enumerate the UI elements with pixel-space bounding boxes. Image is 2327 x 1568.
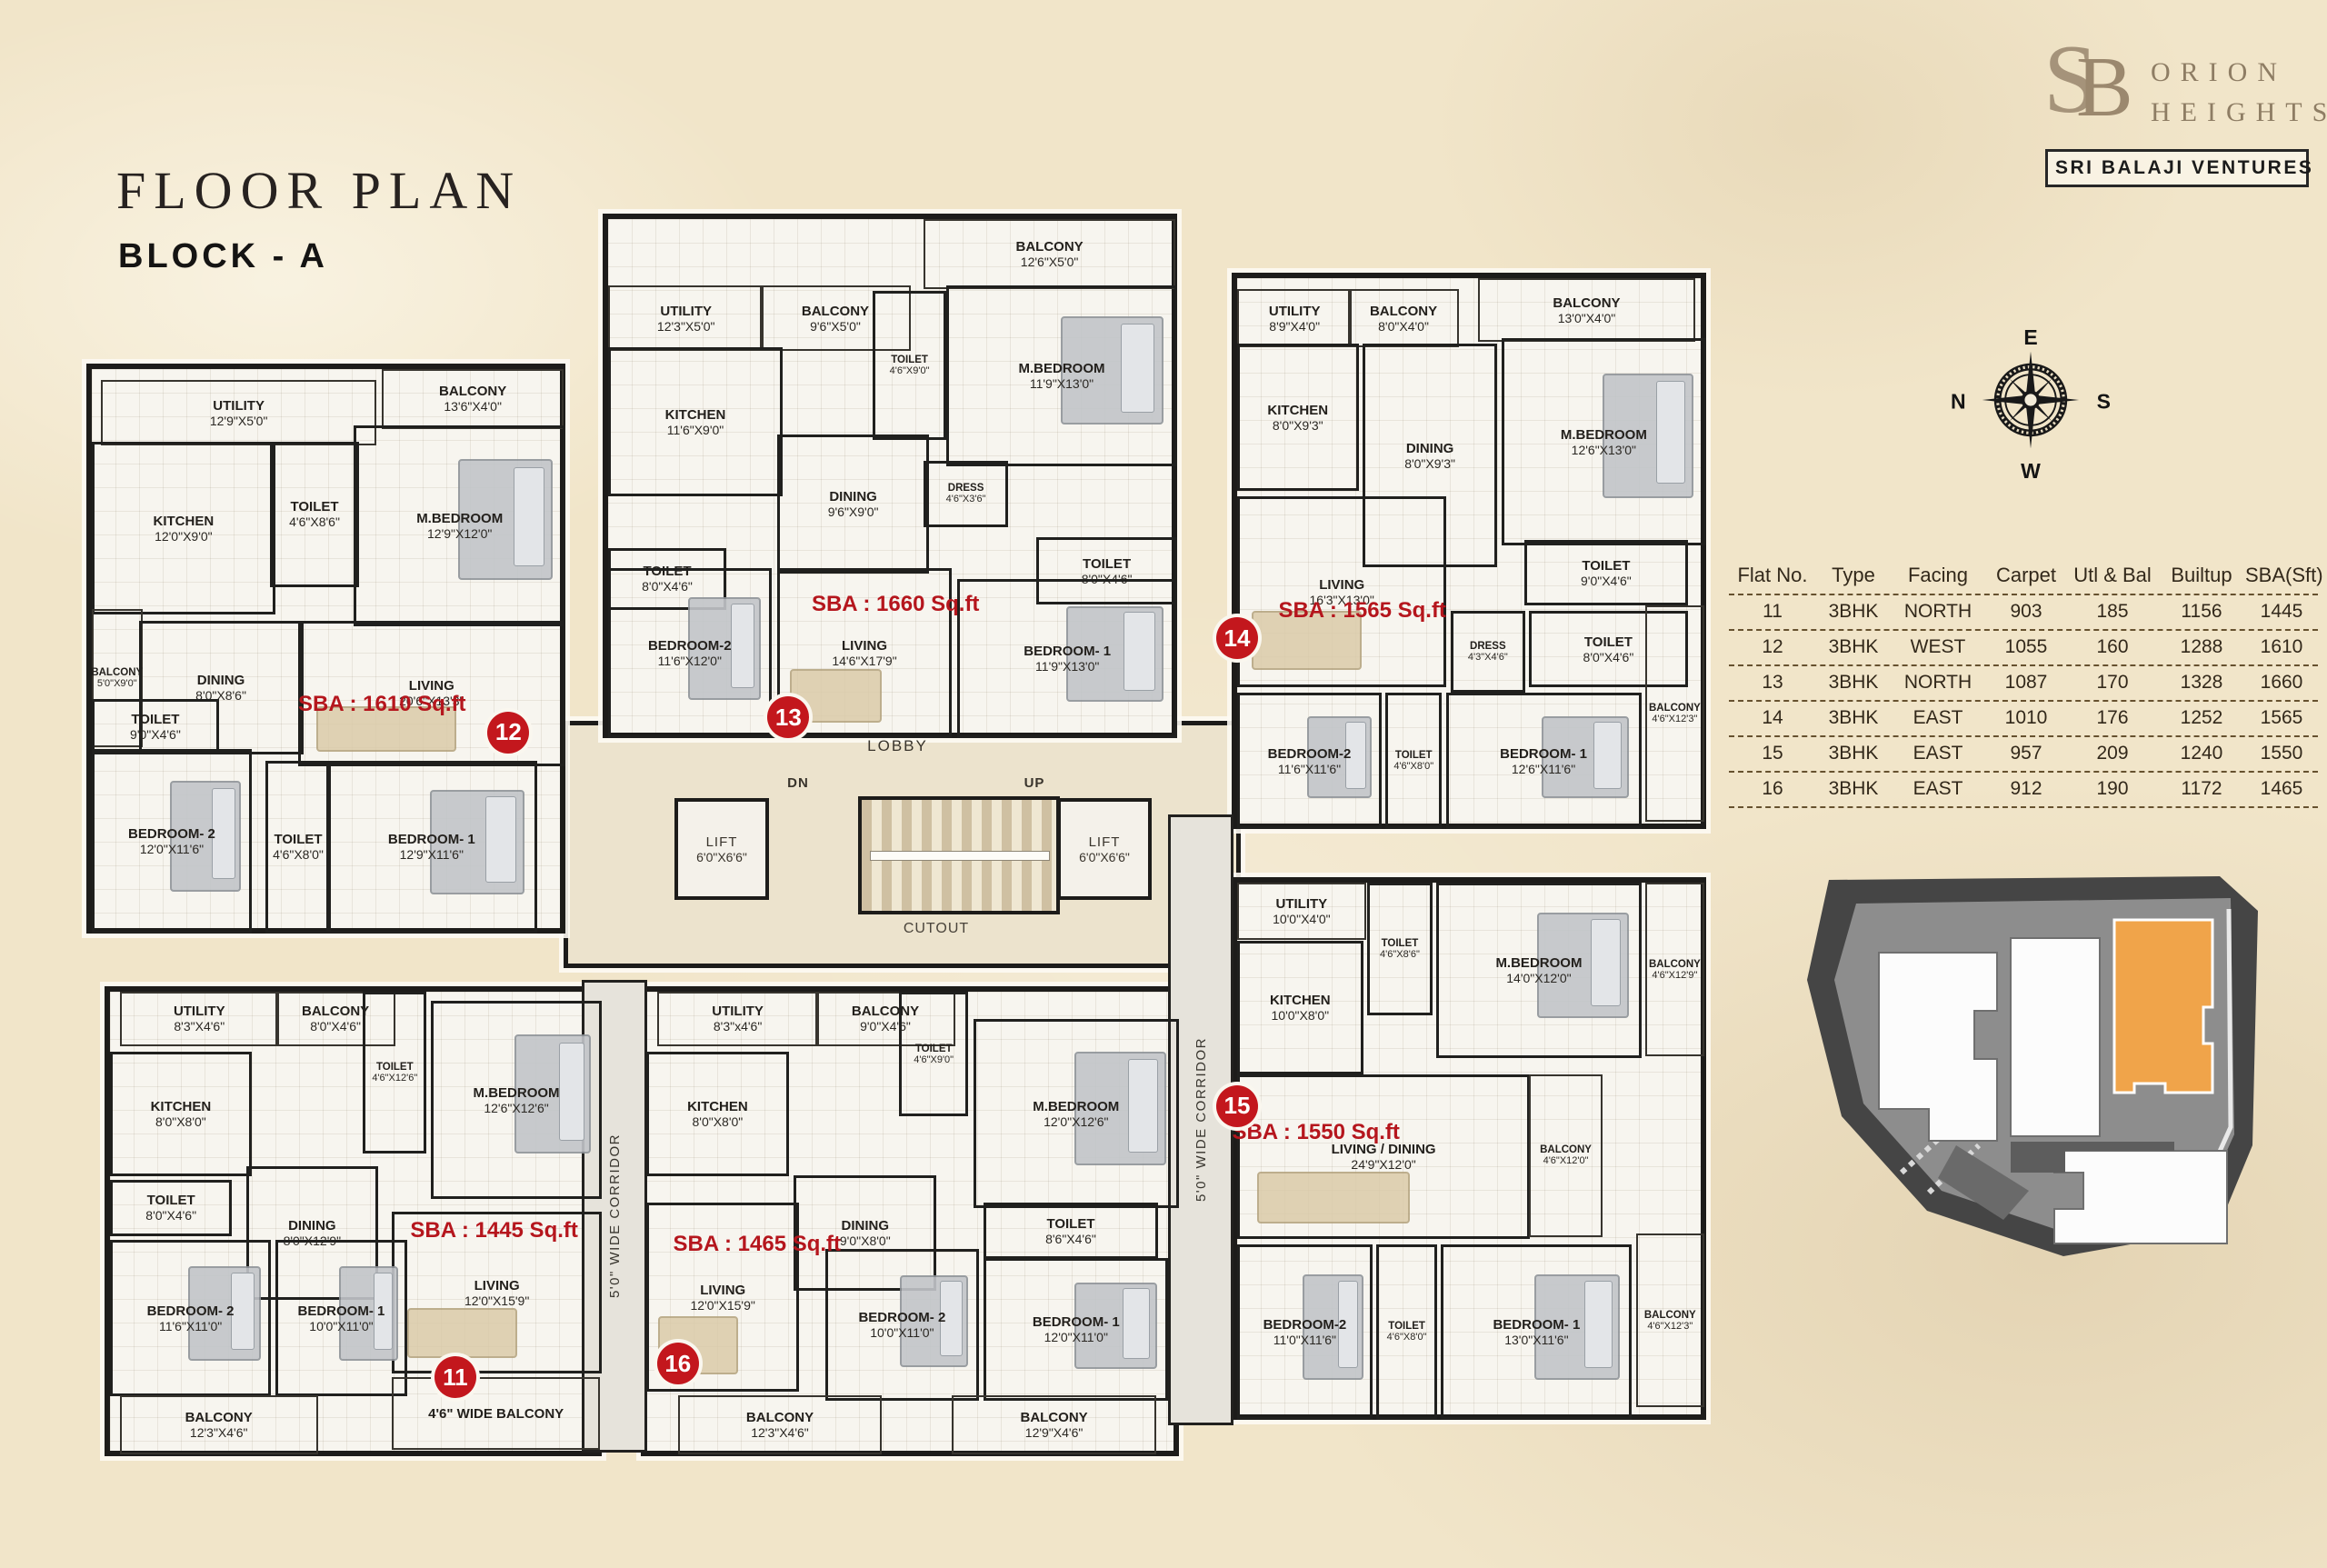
room-name-label: BEDROOM- 1 xyxy=(298,1303,385,1319)
room-name-label: M.BEDROOM xyxy=(416,511,503,526)
unit-14-m-bedroom: M.BEDROOM12'6"X13'0" xyxy=(1502,338,1706,545)
room-dim-label: 8'0"X4'6" xyxy=(1583,650,1634,664)
room-dim-label: 9'0"X4'6" xyxy=(1581,574,1632,588)
unit-16-number-badge: 16 xyxy=(657,1343,699,1384)
unit-15-balcony: BALCONY4'6"X12'3" xyxy=(1636,1233,1704,1407)
room-dim-label: 4'6"X9'0" xyxy=(890,365,930,376)
room-name-label: TOILET xyxy=(1395,750,1433,761)
room-name-label: BEDROOM-2 xyxy=(1268,746,1352,762)
unit-11-kitchen: KITCHEN8'0"X8'0" xyxy=(110,1052,252,1176)
unit-12-m-bedroom: M.BEDROOM12'9"X12'0" xyxy=(354,425,565,626)
core-stairs-area xyxy=(858,796,1060,914)
core-cutout-cutout: CUTOUT xyxy=(845,911,1027,947)
unit-11-4-6-wide-balcony: 4'6" WIDE BALCONY xyxy=(392,1377,600,1450)
room-dim-label: 11'6"X11'6" xyxy=(1278,762,1341,776)
unit-11-utility: UTILITY8'3"X4'6" xyxy=(120,992,279,1046)
unit-15-kitchen: KITCHEN10'0"X8'0" xyxy=(1237,941,1363,1074)
core-label: LOBBY xyxy=(867,737,928,755)
room-name-label: DINING xyxy=(1406,441,1454,456)
room-dim-label: 12'0"X12'6" xyxy=(1044,1114,1108,1129)
room-name-label: DINING xyxy=(288,1218,336,1233)
unit-12-sba-label: SBA : 1610 Sq.ft xyxy=(298,692,466,717)
unit-14-kitchen: KITCHEN8'0"X9'3" xyxy=(1237,344,1359,491)
unit-15-bedroom-1: BEDROOM- 113'0"X11'6" xyxy=(1441,1244,1632,1420)
unit-16-bedroom-2: BEDROOM- 210'0"X11'0" xyxy=(825,1249,978,1402)
room-name-label: M.BEDROOM xyxy=(1495,955,1582,971)
room-dim-label: 4'6"X8'0" xyxy=(1387,1332,1427,1343)
unit-15-number-badge: 15 xyxy=(1216,1085,1258,1127)
room-name-label: KITCHEN xyxy=(151,1099,212,1114)
room-dim-label: 11'6"X12'0" xyxy=(658,654,722,668)
room-dim-label: 8'0"X8'0" xyxy=(693,1114,744,1129)
room-name-label: TOILET xyxy=(1046,1216,1094,1232)
room-dim-label: 12'6"X12'6" xyxy=(484,1101,548,1115)
room-dim-label: 8'9"X4'0" xyxy=(1269,319,1320,334)
room-name-label: UTILITY xyxy=(1269,304,1321,319)
unit-15-balcony: BALCONY4'6"X12'0" xyxy=(1529,1074,1603,1238)
room-name-label: M.BEDROOM xyxy=(1561,427,1647,443)
unit-14-balcony: BALCONY4'6"X12'3" xyxy=(1645,605,1704,822)
room-name-label: TOILET xyxy=(1582,558,1630,574)
core-dim-label: 6'0"X6'6" xyxy=(696,850,747,864)
room-dim-label: 8'3"X4'6" xyxy=(174,1019,225,1034)
core-dim-label: 6'0"X6'6" xyxy=(1079,850,1130,864)
room-name-label: TOILET xyxy=(131,712,179,727)
unit-14-dress: DRESS4'3"X4'6" xyxy=(1451,611,1526,693)
unit-12-bedroom-1: BEDROOM- 112'9"X11'6" xyxy=(326,761,538,934)
room-dim-label: 9'0"X4'6" xyxy=(130,727,181,742)
room-name-label: BALCONY xyxy=(746,1410,814,1425)
room-dim-label: 13'0"X11'6" xyxy=(1504,1333,1568,1347)
unit-15-sba-label: SBA : 1550 Sq.ft xyxy=(1232,1120,1400,1145)
unit-13-balcony: BALCONY12'6"X5'0" xyxy=(924,219,1175,289)
room-name-label: TOILET xyxy=(1083,556,1131,572)
unit-16-bedroom-1: BEDROOM- 112'0"X11'0" xyxy=(984,1258,1168,1402)
unit-11-m-bedroom: M.BEDROOM12'6"X12'6" xyxy=(431,1001,602,1199)
room-name-label: BEDROOM- 2 xyxy=(858,1310,945,1325)
core-label-lobby: LOBBY xyxy=(564,725,1232,767)
unit-15-toilet: TOILET4'6"X8'6" xyxy=(1367,883,1433,1015)
unit-12-bedroom-2: BEDROOM- 212'0"X11'6" xyxy=(92,749,252,934)
room-dim-label: 12'6"X5'0" xyxy=(1021,255,1079,269)
room-dim-label: 4'6"X12'3" xyxy=(1647,1321,1693,1332)
room-name-label: BEDROOM- 1 xyxy=(388,832,475,847)
room-dim-label: 12'9"X11'6" xyxy=(400,847,464,862)
room-dim-label: 11'6"X11'0" xyxy=(159,1319,222,1333)
unit-16: UTILITY8'3"x4'6"BALCONY9'0"X4'6"TOILET4'… xyxy=(641,986,1179,1456)
unit-14-balcony: BALCONY13'0"X4'0" xyxy=(1478,278,1695,342)
unit-11-number-badge: 11 xyxy=(434,1356,476,1398)
room-dim-label: 24'9"X12'0" xyxy=(1351,1157,1415,1172)
room-name-label: DRESS xyxy=(1470,641,1506,652)
room-dim-label: 4'3"X4'6" xyxy=(1468,652,1508,663)
room-name-label: BALCONY xyxy=(1553,295,1620,311)
unit-14-bedroom-2: BEDROOM-211'6"X11'6" xyxy=(1237,693,1382,829)
unit-15-m-bedroom: M.BEDROOM14'0"X12'0" xyxy=(1436,883,1641,1058)
room-dim-label: 12'9"X12'0" xyxy=(427,526,492,541)
room-dim-label: 14'0"X12'0" xyxy=(1506,971,1571,985)
room-name-label: UTILITY xyxy=(660,304,712,319)
room-name-label: DINING xyxy=(197,673,245,688)
room-name-label: UTILITY xyxy=(1276,896,1328,912)
room-dim-label: 12'0"X11'0" xyxy=(1044,1330,1108,1344)
room-name-label: BEDROOM- 2 xyxy=(147,1303,235,1319)
room-dim-label: 10'0"X4'0" xyxy=(1273,912,1331,926)
room-name-label: LIVING xyxy=(1319,577,1364,593)
room-dim-label: 12'6"X13'0" xyxy=(1572,443,1636,457)
room-name-label: UTILITY xyxy=(174,1004,225,1019)
unit-13-sba-label: SBA : 1660 Sq.ft xyxy=(812,592,980,617)
core-label: 5'0" WIDE CORRIDOR xyxy=(1193,1037,1209,1202)
room-dim-label: 12'0"X15'9" xyxy=(464,1293,529,1308)
room-dim-label: 12'9"X4'6" xyxy=(1025,1425,1084,1440)
unit-12-toilet: TOILET4'6"X8'6" xyxy=(270,442,360,587)
room-dim-label: 4'6"X3'6" xyxy=(946,494,986,504)
room-dim-label: 4'6"X8'0" xyxy=(1393,761,1433,772)
room-dim-label: 8'0"X4'6" xyxy=(310,1019,361,1034)
unit-13-utility: UTILITY12'3"X5'0" xyxy=(608,285,764,351)
unit-14-bedroom-1: BEDROOM- 112'6"X11'6" xyxy=(1446,693,1642,829)
unit-15-toilet: TOILET4'6"X8'0" xyxy=(1376,1244,1437,1420)
room-name-label: KITCHEN xyxy=(154,514,215,529)
core-label: LIFT xyxy=(706,834,738,850)
room-name-label: BALCONY xyxy=(1540,1144,1592,1155)
room-name-label: BEDROOM-2 xyxy=(1263,1317,1347,1333)
unit-11-bedroom-1: BEDROOM- 110'0"X11'0" xyxy=(275,1240,407,1397)
room-dim-label: 4'6"X12'3" xyxy=(1652,714,1697,724)
room-dim-label: 13'0"X4'0" xyxy=(1558,311,1616,325)
room-name-label: BALCONY xyxy=(1016,239,1084,255)
room-dim-label: 8'6"X4'6" xyxy=(1045,1232,1096,1246)
room-dim-label: 13'6"X4'0" xyxy=(444,399,502,414)
unit-13-dress: DRESS4'6"X3'6" xyxy=(924,461,1008,528)
unit-14-living: LIVING16'3"X13'0" xyxy=(1237,496,1446,687)
unit-14: UTILITY8'9"X4'0"BALCONY8'0"X4'0"BALCONY1… xyxy=(1232,273,1706,829)
unit-16-balcony: BALCONY12'9"X4'6" xyxy=(952,1395,1155,1454)
unit-15: UTILITY10'0"X4'0"TOILET4'6"X8'6"M.BEDROO… xyxy=(1232,877,1706,1420)
room-name-label: BEDROOM- 1 xyxy=(1500,746,1587,762)
room-dim-label: 8'3"x4'6" xyxy=(714,1019,762,1034)
room-name-label: M.BEDROOM xyxy=(1033,1099,1119,1114)
room-dim-label: 9'0"X8'0" xyxy=(840,1233,891,1248)
unit-16-sba-label: SBA : 1465 Sq.ft xyxy=(674,1232,842,1257)
room-dim-label: 12'0"X15'9" xyxy=(691,1298,755,1313)
room-dim-label: 4'6"X8'6" xyxy=(1380,949,1420,960)
room-name-label: BALCONY xyxy=(1370,304,1437,319)
floor-plan-canvas: LOBBYDNUPLIFT6'0"X6'6"LIFT6'0"X6'6"CUTOU… xyxy=(0,0,2327,1568)
room-name-label: BALCONY xyxy=(1649,959,1701,970)
room-name-label: TOILET xyxy=(274,832,322,847)
room-dim-label: 10'0"X11'0" xyxy=(309,1319,373,1333)
room-name-label: BALCONY xyxy=(91,667,143,678)
room-dim-label: 4'6"X12'9" xyxy=(1652,970,1697,981)
room-name-label: M.BEDROOM xyxy=(474,1085,560,1101)
unit-15-living-dining: LIVING / DINING24'9"X12'0" xyxy=(1237,1074,1530,1240)
room-name-label: TOILET xyxy=(291,499,339,514)
core-label: DN xyxy=(787,775,809,791)
room-dim-label: 8'0"X9'3" xyxy=(1404,456,1455,471)
unit-16-m-bedroom: M.BEDROOM12'0"X12'6" xyxy=(974,1019,1179,1208)
room-name-label: M.BEDROOM xyxy=(1019,361,1105,376)
room-name-label: TOILET xyxy=(1382,938,1419,949)
unit-16-kitchen: KITCHEN8'0"X8'0" xyxy=(646,1052,789,1176)
unit-13-bedroom-1: BEDROOM- 111'9"X13'0" xyxy=(957,579,1177,739)
unit-11-toilet: TOILET4'6"X12'6" xyxy=(363,992,426,1154)
unit-11-balcony: BALCONY12'3"X4'6" xyxy=(120,1395,318,1454)
unit-14-toilet: TOILET4'6"X8'0" xyxy=(1385,693,1442,829)
unit-12-number-badge: 12 xyxy=(487,712,529,754)
unit-12-kitchen: KITCHEN12'0"X9'0" xyxy=(92,442,275,615)
unit-12: UTILITY12'9"X5'0"BALCONY13'6"X4'0"KITCHE… xyxy=(86,364,565,934)
room-dim-label: 8'0"X9'3" xyxy=(1273,418,1323,433)
room-dim-label: 11'0"X11'6" xyxy=(1273,1333,1336,1347)
room-dim-label: 4'6"X8'0" xyxy=(273,847,324,862)
core-text-up: UP xyxy=(1007,771,1062,794)
floor-plan-page: FLOOR PLAN BLOCK - A S B ORION HEIGHTS S… xyxy=(0,0,2327,1568)
unit-12-balcony: BALCONY13'6"X4'0" xyxy=(382,369,564,429)
unit-15-bedroom-2: BEDROOM-211'0"X11'6" xyxy=(1237,1244,1373,1420)
room-name-label: TOILET xyxy=(147,1193,195,1208)
room-name-label: BALCONY xyxy=(1644,1310,1696,1321)
room-name-label: DINING xyxy=(842,1218,890,1233)
room-dim-label: 8'0"X4'0" xyxy=(1378,319,1429,334)
room-name-label: TOILET xyxy=(1388,1321,1425,1332)
room-name-label: BALCONY xyxy=(185,1410,253,1425)
room-name-label: BEDROOM-2 xyxy=(648,638,732,654)
room-dim-label: 12'6"X11'6" xyxy=(1512,762,1575,776)
room-dim-label: 12'3"X4'6" xyxy=(751,1425,809,1440)
unit-16-balcony: BALCONY12'3"X4'6" xyxy=(678,1395,882,1454)
room-name-label: BALCONY xyxy=(802,304,869,319)
room-name-label: DRESS xyxy=(948,483,984,494)
room-name-label: BEDROOM- 1 xyxy=(1033,1314,1120,1330)
unit-14-toilet: TOILET9'0"X4'6" xyxy=(1524,540,1687,605)
unit-15-utility: UTILITY10'0"X4'0" xyxy=(1237,883,1366,940)
unit-13-dining: DINING9'6"X9'0" xyxy=(777,434,929,574)
core-label: CUTOUT xyxy=(904,921,969,937)
room-dim-label: 9'6"X9'0" xyxy=(828,504,879,519)
unit-16-utility: UTILITY8'3"x4'6" xyxy=(657,992,819,1046)
room-dim-label: 8'0"X8'0" xyxy=(155,1114,206,1129)
unit-15-balcony: BALCONY4'6"X12'9" xyxy=(1645,883,1704,1056)
unit-14-sba-label: SBA : 1565 Sq.ft xyxy=(1278,598,1446,624)
core-label: 5'0" WIDE CORRIDOR xyxy=(607,1134,623,1298)
unit-11: UTILITY8'3"X4'6"BALCONY8'0"X4'6"TOILET4'… xyxy=(105,986,602,1456)
unit-13-kitchen: KITCHEN11'6"X9'0" xyxy=(608,347,783,496)
room-name-label: TOILET xyxy=(915,1044,953,1054)
room-name-label: BEDROOM- 2 xyxy=(128,826,215,842)
room-dim-label: 10'0"X11'0" xyxy=(870,1325,934,1340)
room-dim-label: 8'0"X4'6" xyxy=(145,1208,196,1223)
room-name-label: BEDROOM- 1 xyxy=(1493,1317,1580,1333)
room-name-label: LIVING xyxy=(700,1283,745,1298)
unit-11-toilet: TOILET8'0"X4'6" xyxy=(110,1180,232,1236)
room-name-label: KITCHEN xyxy=(687,1099,748,1114)
room-name-label: UTILITY xyxy=(213,398,265,414)
room-dim-label: 12'3"X5'0" xyxy=(657,319,715,334)
core-text-dn: DN xyxy=(771,771,825,794)
unit-12-toilet: TOILET9'0"X4'6" xyxy=(92,699,219,754)
unit-13-m-bedroom: M.BEDROOM11'9"X13'0" xyxy=(946,285,1177,465)
unit-13: BALCONY12'6"X5'0"UTILITY12'3"X5'0"BALCON… xyxy=(603,214,1177,738)
unit-13-bedroom-2: BEDROOM-211'6"X12'0" xyxy=(608,568,772,738)
room-dim-label: 12'0"X9'0" xyxy=(155,529,213,544)
core-label: UP xyxy=(1024,775,1045,791)
unit-12-toilet: TOILET4'6"X8'0" xyxy=(265,761,332,934)
room-name-label: KITCHEN xyxy=(1270,993,1331,1008)
room-name-label: BALCONY xyxy=(439,384,506,399)
room-dim-label: 12'0"X11'6" xyxy=(140,842,204,856)
room-name-label: TOILET xyxy=(1584,634,1633,650)
room-dim-label: 10'0"X8'0" xyxy=(1272,1008,1330,1023)
room-name-label: BALCONY xyxy=(1021,1410,1088,1425)
unit-14-balcony: BALCONY8'0"X4'0" xyxy=(1348,289,1458,347)
room-dim-label: 9'6"X5'0" xyxy=(810,319,861,334)
unit-16-toilet: TOILET4'6"X9'0" xyxy=(899,992,968,1116)
room-name-label: DINING xyxy=(829,489,877,504)
room-name-label: TOILET xyxy=(376,1062,414,1073)
core-lift-lift: LIFT6'0"X6'6" xyxy=(1057,798,1152,900)
core-label: LIFT xyxy=(1089,834,1121,850)
room-name-label: BALCONY xyxy=(302,1004,369,1019)
unit-11-bedroom-2: BEDROOM- 211'6"X11'0" xyxy=(110,1240,271,1397)
room-dim-label: 4'6"X12'0" xyxy=(1543,1155,1589,1166)
unit-14-number-badge: 14 xyxy=(1216,617,1258,659)
room-dim-label: 4'6"X12'6" xyxy=(372,1073,417,1084)
room-dim-label: 12'3"X4'6" xyxy=(190,1425,248,1440)
core-lift-lift: LIFT6'0"X6'6" xyxy=(674,798,769,900)
room-dim-label: 11'9"X13'0" xyxy=(1035,659,1099,674)
room-dim-label: 4'6"X9'0" xyxy=(914,1054,954,1065)
room-name-label: 4'6" WIDE BALCONY xyxy=(428,1406,564,1422)
room-name-label: TOILET xyxy=(891,355,928,365)
room-name-label: KITCHEN xyxy=(665,407,726,423)
room-dim-label: 11'9"X13'0" xyxy=(1030,376,1094,391)
unit-16-toilet: TOILET8'6"X4'6" xyxy=(984,1203,1158,1259)
room-name-label: KITCHEN xyxy=(1267,403,1328,418)
room-dim-label: 12'9"X5'0" xyxy=(210,414,268,428)
room-dim-label: 14'6"X17'9" xyxy=(832,654,896,668)
room-name-label: LIVING xyxy=(474,1278,520,1293)
unit-12-utility: UTILITY12'9"X5'0" xyxy=(101,380,376,445)
room-name-label: BALCONY xyxy=(1649,703,1701,714)
room-name-label: BEDROOM- 1 xyxy=(1024,644,1111,659)
room-name-label: UTILITY xyxy=(712,1004,764,1019)
unit-13-toilet: TOILET4'6"X9'0" xyxy=(873,291,945,440)
unit-11-sba-label: SBA : 1445 Sq.ft xyxy=(410,1218,578,1243)
room-dim-label: 5'0"X9'0" xyxy=(97,678,137,689)
unit-14-utility: UTILITY8'9"X4'0" xyxy=(1237,289,1352,347)
room-name-label: LIVING xyxy=(842,638,887,654)
room-dim-label: 11'6"X9'0" xyxy=(667,423,724,437)
unit-13-number-badge: 13 xyxy=(767,696,809,738)
room-dim-label: 4'6"X8'6" xyxy=(289,514,340,529)
